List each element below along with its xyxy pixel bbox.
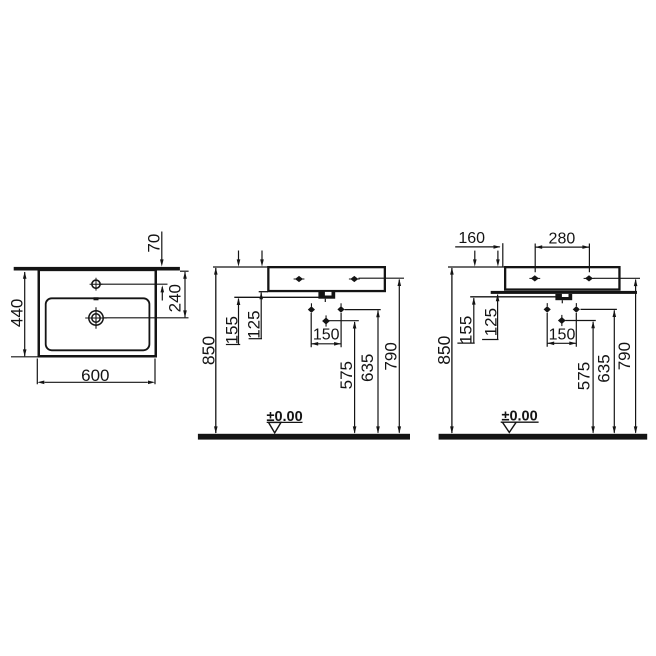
svg-text:635: 635 (358, 354, 377, 382)
svg-text:150: 150 (313, 327, 340, 344)
svg-text:125: 125 (244, 310, 263, 338)
svg-text:240: 240 (166, 284, 185, 312)
svg-text:150: 150 (549, 327, 576, 344)
svg-text:155: 155 (222, 316, 241, 344)
svg-text:575: 575 (574, 362, 593, 390)
svg-text:160: 160 (458, 230, 485, 247)
svg-text:790: 790 (615, 342, 634, 370)
svg-text:850: 850 (434, 335, 454, 364)
svg-text:575: 575 (337, 361, 356, 389)
svg-text:155: 155 (457, 316, 476, 344)
svg-text:280: 280 (549, 230, 576, 247)
svg-text:70: 70 (145, 234, 164, 253)
svg-text:440: 440 (8, 299, 27, 327)
svg-text:790: 790 (382, 342, 401, 370)
svg-text:635: 635 (595, 354, 614, 382)
svg-text:600: 600 (81, 366, 109, 385)
svg-text:850: 850 (198, 336, 218, 365)
svg-text:125: 125 (481, 308, 500, 336)
